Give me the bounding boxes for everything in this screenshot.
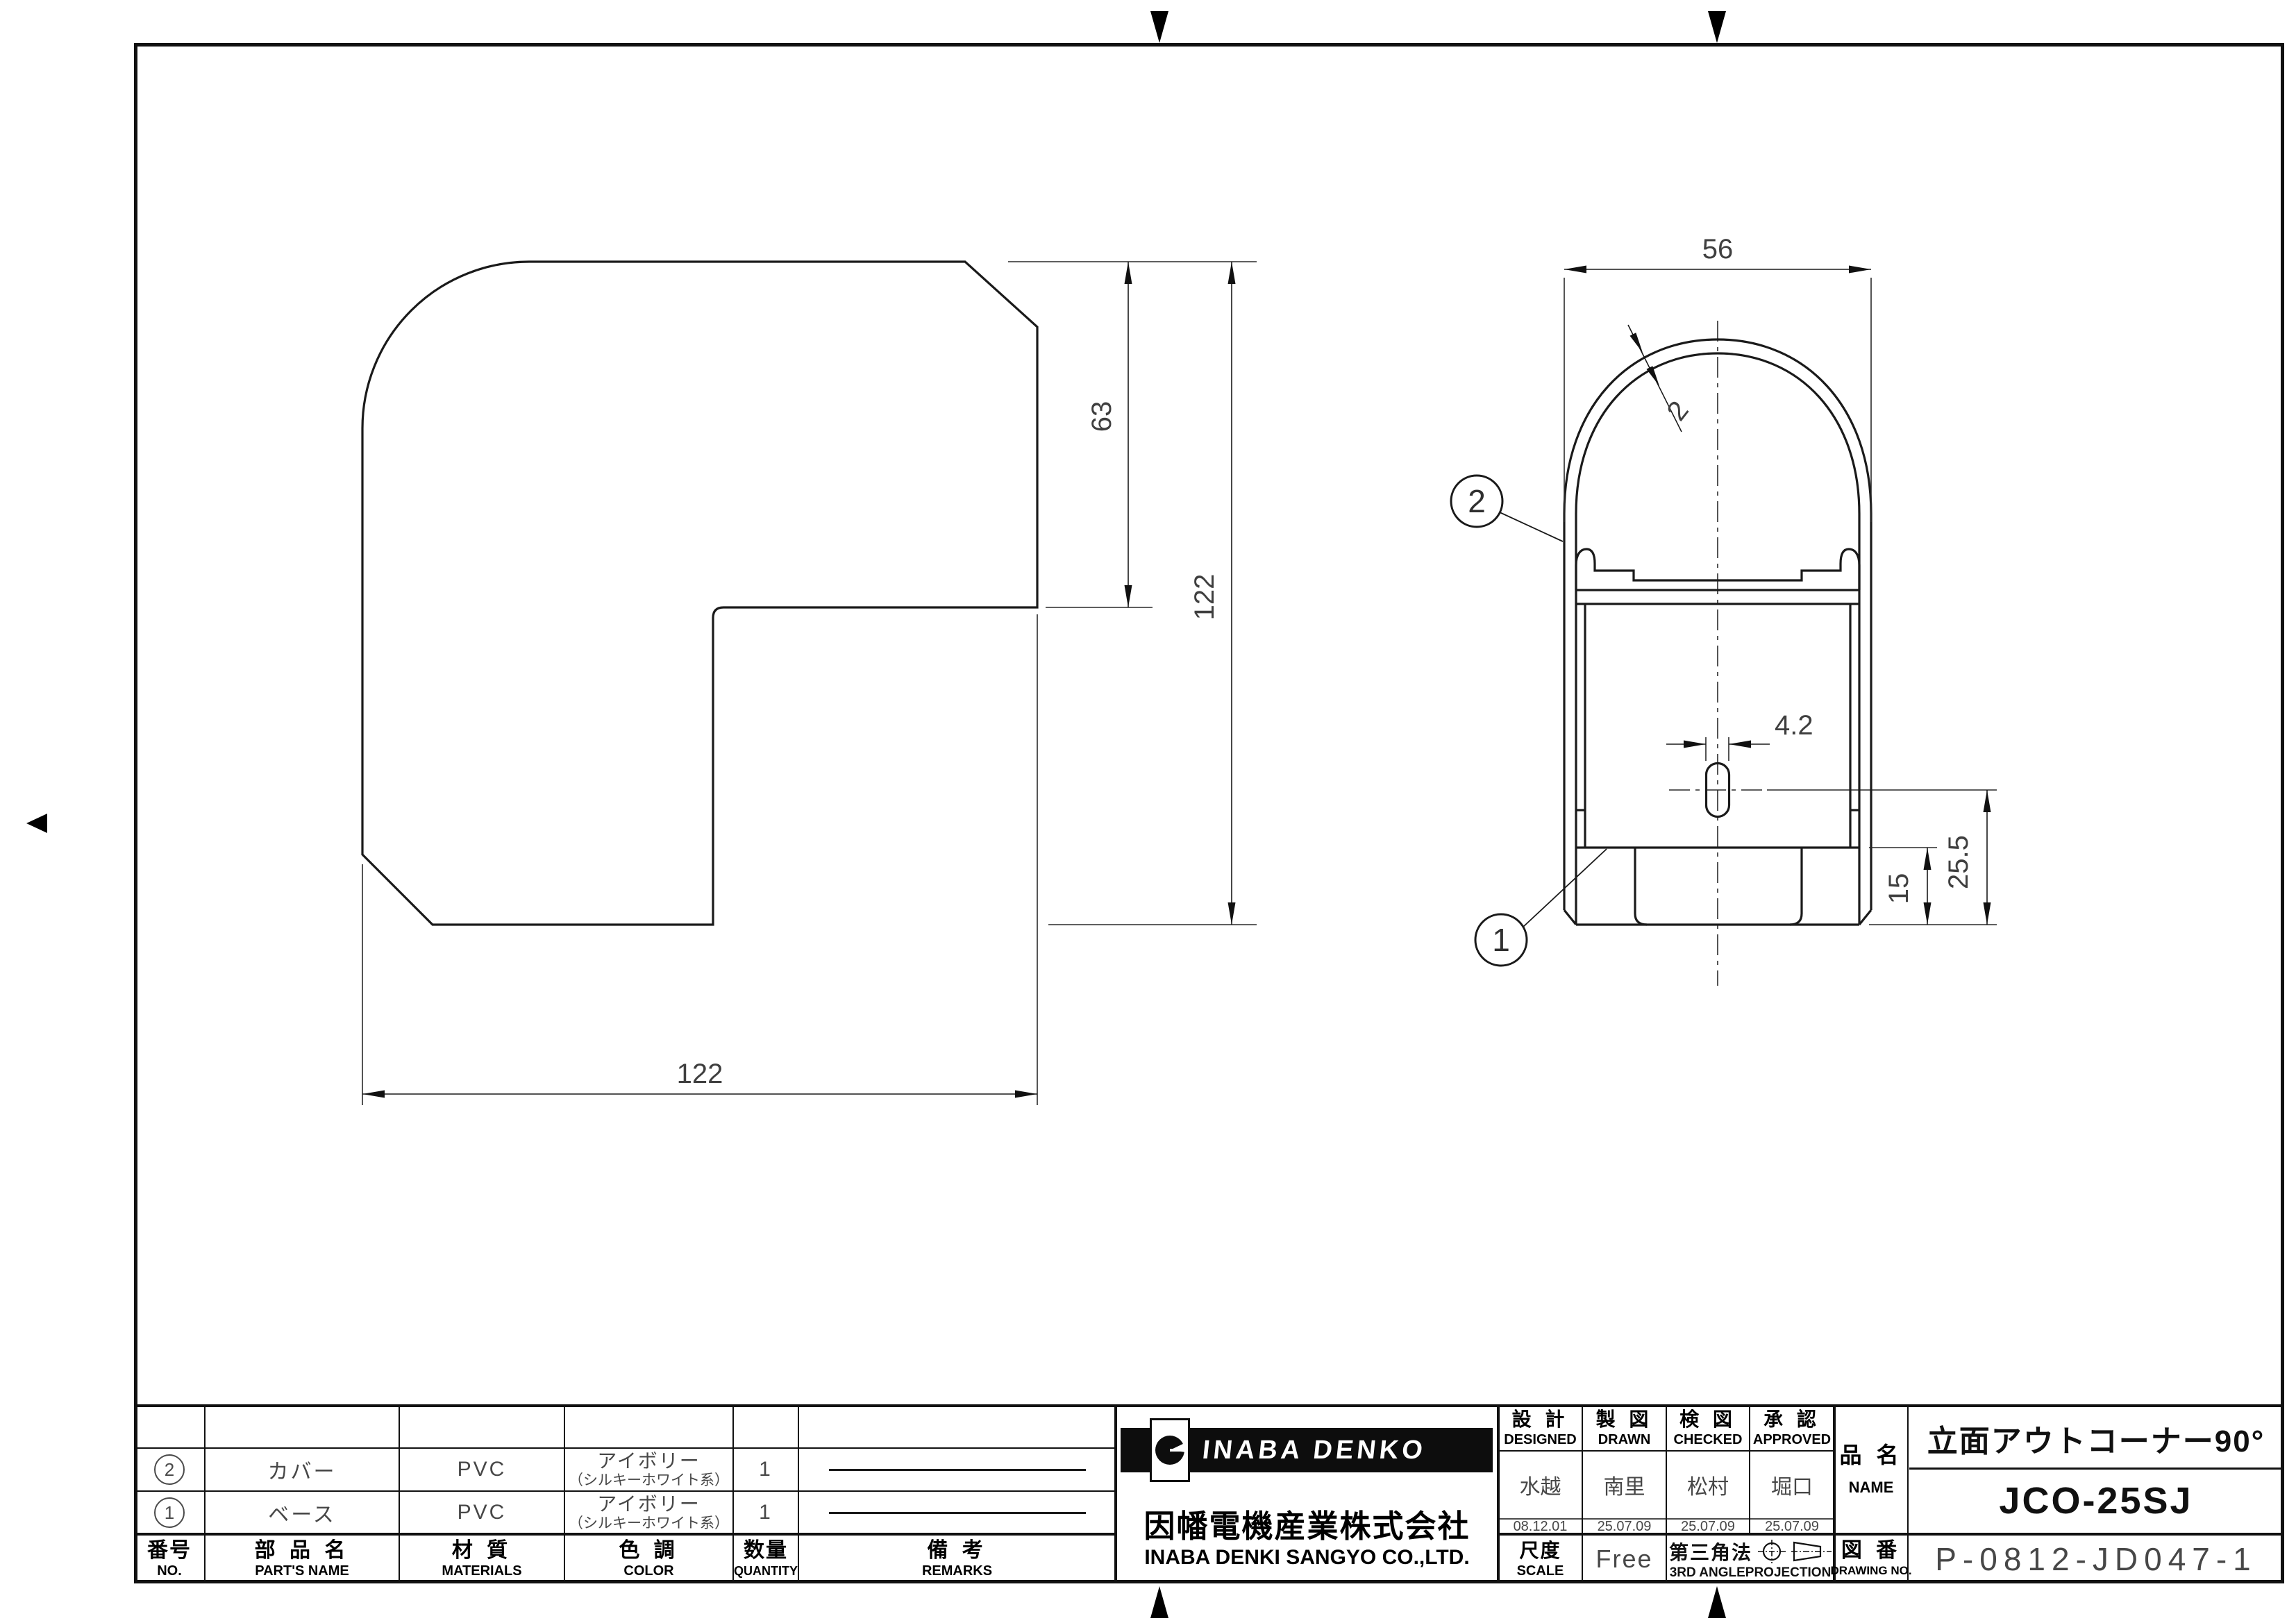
- part-row-2-name: カバー: [205, 1448, 399, 1491]
- projection-cone-icon: [1791, 1540, 1832, 1563]
- signoff-approved-date: 25.07.09: [1750, 1519, 1834, 1534]
- signoff-approved-en: APPROVED: [1753, 1431, 1831, 1448]
- color-sub: （シルキーホワイト系）: [569, 1472, 729, 1489]
- signoff-designed-name: 水越: [1498, 1451, 1582, 1519]
- name-value: 立面アウトコーナー90° JCO-25SJ: [1908, 1404, 2284, 1534]
- extension-lines: [1564, 278, 1997, 925]
- signoff-designed-en: DESIGNED: [1504, 1431, 1576, 1448]
- part-row-2-qty: 1: [733, 1448, 798, 1491]
- signoff-checked-en: CHECKED: [1674, 1431, 1743, 1448]
- part-row-1-color: アイボリー （シルキーホワイト系）: [564, 1491, 733, 1534]
- signoff-drawn-en: DRAWN: [1598, 1431, 1651, 1448]
- projection-en: 3RD ANGLEPROJECTION: [1670, 1565, 1832, 1581]
- dim-25-5: 25.5: [1943, 835, 1974, 889]
- header-materials-en: MATERIALS: [442, 1563, 521, 1579]
- projection-cell: 第三角法 3RD ANGLEPROJECTION: [1666, 1534, 1834, 1583]
- signoff-approved-name: 堀口: [1750, 1451, 1834, 1519]
- header-color-en: COLOR: [623, 1563, 673, 1579]
- scale-label-en: SCALE: [1517, 1563, 1564, 1579]
- front-view: 63 122 122: [299, 208, 1284, 1132]
- header-parts-name-jp: 部 品 名: [255, 1539, 350, 1563]
- company-name-jp: 因幡電機産業株式会社: [1143, 1501, 1470, 1546]
- name-label: 品 名 NAME: [1834, 1404, 1908, 1534]
- header-no: 番号 NO.: [134, 1534, 205, 1583]
- circled-number: 2: [154, 1454, 185, 1485]
- header-no-en: NO.: [157, 1563, 182, 1579]
- drawing-no-label-jp: 図 番: [1841, 1539, 1901, 1563]
- header-remarks: 備 考 REMARKS: [798, 1534, 1116, 1583]
- drawing-sheet: 63 122 122: [0, 0, 2296, 1623]
- signoff-approved-header: 承 認 APPROVED: [1750, 1404, 1834, 1451]
- projection-jp: 第三角法: [1669, 1538, 1752, 1565]
- dim-122-horizontal: 122: [677, 1059, 723, 1089]
- header-materials: 材 質 MATERIALS: [399, 1534, 564, 1583]
- color-main: アイボリー: [597, 1493, 701, 1515]
- header-parts-name: 部 品 名 PART'S NAME: [205, 1534, 399, 1583]
- part-row-2-material: PVC: [399, 1448, 564, 1491]
- circled-number: 1: [154, 1497, 185, 1528]
- signoff-checked-jp: 検 図: [1679, 1408, 1736, 1431]
- header-remarks-jp: 備 考: [927, 1539, 987, 1563]
- part-row-1-qty: 1: [733, 1491, 798, 1534]
- part-no-text: 2: [165, 1459, 174, 1481]
- part-row-1-remarks: [798, 1491, 1116, 1534]
- dim-122-vertical: 122: [1189, 574, 1220, 621]
- header-materials-jp: 材 質: [452, 1539, 512, 1563]
- dim-56: 56: [1702, 234, 1734, 264]
- header-quantity-jp: 数量: [744, 1539, 788, 1563]
- header-parts-name-en: PART'S NAME: [255, 1563, 349, 1579]
- balloon-base-number: 1: [1492, 922, 1510, 958]
- drawing-no-label: 図 番 DRAWING NO.: [1834, 1534, 1908, 1583]
- header-color: 色 調 COLOR: [564, 1534, 733, 1583]
- part-row-1-name: ベース: [205, 1491, 399, 1534]
- maker-company: 因幡電機産業株式会社 INABA DENKI SANGYO CO.,LTD.: [1116, 1486, 1498, 1583]
- title-block: 2 カバー PVC アイボリー （シルキーホワイト系） 1 1 ベース PVC …: [134, 1404, 2284, 1583]
- signoff-checked-header: 検 図 CHECKED: [1666, 1404, 1750, 1451]
- signoff-approved-jp: 承 認: [1763, 1408, 1820, 1431]
- signoff-checked-date: 25.07.09: [1666, 1519, 1750, 1534]
- part-row-2-no: 2: [134, 1448, 205, 1491]
- part-row-1-material: PVC: [399, 1491, 564, 1534]
- company-name-en: INABA DENKI SANGYO CO.,LTD.: [1144, 1546, 1469, 1570]
- drawing-no-value: P-0812-JD047-1: [1908, 1534, 2284, 1583]
- dimension-lines: [362, 262, 1232, 1094]
- fold-mark-top-left-icon: [1150, 11, 1168, 43]
- balloon-cover: 2: [1451, 476, 1563, 541]
- color-main: アイボリー: [597, 1450, 701, 1472]
- signoff-drawn-date: 25.07.09: [1582, 1519, 1666, 1534]
- part-row-2-color: アイボリー （シルキーホワイト系）: [564, 1448, 733, 1491]
- part-row-1-no: 1: [134, 1491, 205, 1534]
- header-no-jp: 番号: [147, 1539, 192, 1563]
- signoff-drawn-header: 製 図 DRAWN: [1582, 1404, 1666, 1451]
- part-row-2-remarks: [798, 1448, 1116, 1491]
- logo-mark-icon: [1150, 1418, 1190, 1482]
- dim-15: 15: [1884, 873, 1914, 905]
- fold-mark-bottom-left-icon: [1150, 1586, 1168, 1618]
- header-quantity-en: QUANTITY: [734, 1563, 798, 1579]
- remarks-dash: [829, 1469, 1086, 1471]
- balloon-cover-number: 2: [1468, 483, 1486, 519]
- section-view: 56 2 4.2 25.5 15 2 1: [1416, 215, 2111, 1020]
- name-label-jp: 品 名: [1840, 1443, 1903, 1467]
- signoff-drawn-jp: 製 図: [1596, 1408, 1653, 1431]
- product-name: 立面アウトコーナー90°: [1909, 1416, 2284, 1470]
- header-color-jp: 色 調: [619, 1539, 678, 1563]
- center-mark-left-icon: [26, 814, 47, 833]
- dim-2: 2: [1661, 396, 1695, 427]
- signoff-designed-header: 設 計 DESIGNED: [1498, 1404, 1582, 1451]
- signoff-drawn-name: 南里: [1582, 1451, 1666, 1519]
- scale-label-jp: 尺度: [1519, 1539, 1561, 1563]
- signoff-checked-name: 松村: [1666, 1451, 1750, 1519]
- balloon-base: 1: [1475, 849, 1607, 966]
- fold-mark-top-right-icon: [1708, 11, 1726, 43]
- part-no-text: 1: [165, 1502, 174, 1524]
- remarks-dash: [829, 1512, 1086, 1514]
- projection-target-icon: [1757, 1539, 1787, 1564]
- signoff-designed-jp: 設 計: [1512, 1408, 1569, 1431]
- header-quantity: 数量 QUANTITY: [733, 1534, 798, 1583]
- header-remarks-en: REMARKS: [922, 1563, 992, 1579]
- dim-63: 63: [1087, 401, 1117, 432]
- brand-logotype: INABA DENKO: [1201, 1436, 1427, 1465]
- signoff-designed-date: 08.12.01: [1498, 1519, 1582, 1534]
- model-number: JCO-25SJ: [1999, 1479, 2193, 1522]
- drawing-no-label-en: DRAWING NO.: [1830, 1563, 1911, 1579]
- scale-value: Free: [1582, 1534, 1666, 1583]
- name-label-en: NAME: [1849, 1479, 1894, 1496]
- corner-cover-outline: [362, 262, 1037, 925]
- dim-4-2: 4.2: [1775, 710, 1813, 741]
- thickness-leader-arrows: [1630, 333, 1660, 386]
- color-sub: （シルキーホワイト系）: [569, 1515, 729, 1532]
- scale-label: 尺度 SCALE: [1498, 1534, 1582, 1583]
- extension-lines: [362, 262, 1257, 1105]
- fold-mark-bottom-right-icon: [1708, 1586, 1726, 1618]
